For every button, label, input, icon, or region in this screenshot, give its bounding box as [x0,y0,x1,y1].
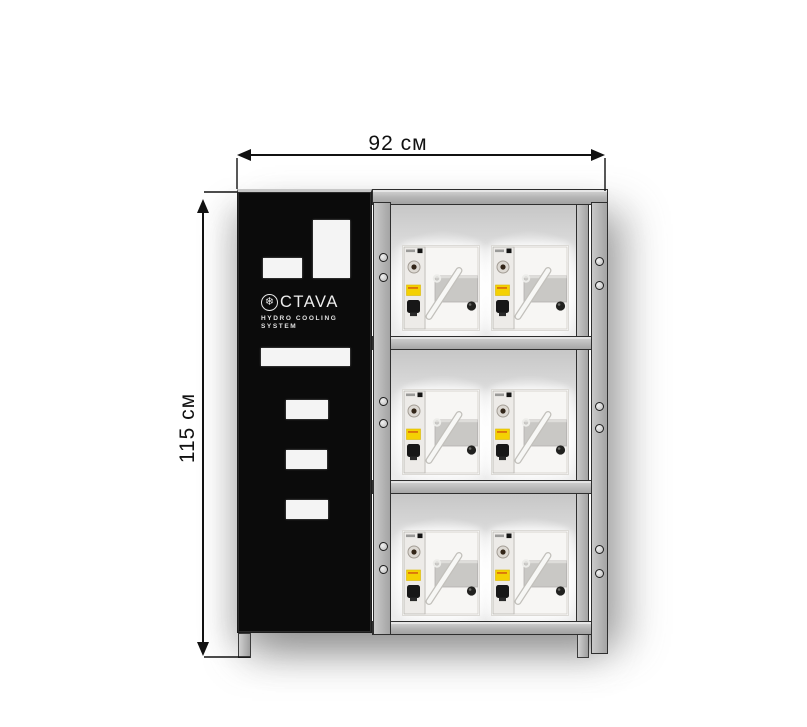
shelf-divider-2 [372,480,608,494]
panel-cutout-tall-top [313,220,350,278]
bolt-icon [595,569,604,578]
bolt-icon [379,397,388,406]
rack-bottom-rail [372,621,608,635]
bolt-icon [595,424,604,433]
arrow-up-icon [197,199,209,213]
rack-top-rail [372,189,608,205]
width-dimension-label: 92 см [318,132,478,156]
cooling-unit-5 [402,530,480,616]
arrow-right-icon [591,149,605,161]
bolt-icon [595,545,604,554]
bolt-icon [595,281,604,290]
cooling-unit-6 [491,530,569,616]
product-diagram: 92 см 115 см ❄ CTAVA HYDRO COOLING SYSTE… [0,0,807,727]
panel-cutout-slot-2 [286,450,327,469]
bolt-icon [379,565,388,574]
bolt-icon [379,253,388,262]
bolt-icon [595,402,604,411]
brand-logo: ❄ CTAVA HYDRO COOLING SYSTEM [261,293,361,330]
bolt-icon [379,273,388,282]
cooling-unit-1 [402,245,480,331]
rack-post-right-inner [576,202,589,623]
panel-cutout-small-top [263,258,302,278]
bolt-icon [595,257,604,266]
bolt-icon [379,542,388,551]
bolt-icon [379,419,388,428]
panel-cutout-slot-1 [286,400,328,419]
shelf-compartment-2 [391,349,576,480]
panel-cutout-wide [261,348,350,366]
panel-cutout-slot-3 [286,500,328,519]
rack-frame [372,189,608,635]
arrow-left-icon [237,149,251,161]
shelf-compartment-3 [391,493,576,621]
panel-left-leg [238,633,251,658]
cooling-unit-2 [491,245,569,331]
front-panel: ❄ CTAVA HYDRO COOLING SYSTEM [237,189,372,633]
snowflake-o-icon: ❄ [261,294,278,311]
rack-right-leg [577,633,589,658]
arrow-down-icon [197,642,209,656]
shelf-compartment-1 [391,204,576,336]
brand-subtitle-line1: HYDRO COOLING [261,315,361,322]
height-dimension-label: 115 см [176,366,200,490]
shelf-divider-1 [372,336,608,350]
brand-name: CTAVA [280,293,339,312]
cooling-unit-4 [491,389,569,475]
cooling-unit-3 [402,389,480,475]
brand-subtitle-line2: SYSTEM [261,323,361,330]
